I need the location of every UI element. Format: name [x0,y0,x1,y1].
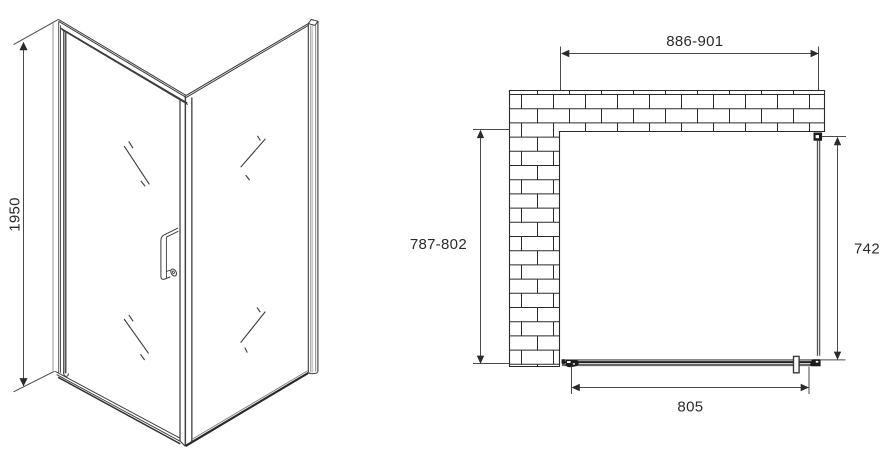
svg-text:886-901: 886-901 [666,33,723,50]
svg-text:805: 805 [677,398,703,415]
svg-text:787-802: 787-802 [410,236,467,253]
svg-text:742: 742 [854,241,880,258]
svg-text:1950: 1950 [7,197,24,232]
